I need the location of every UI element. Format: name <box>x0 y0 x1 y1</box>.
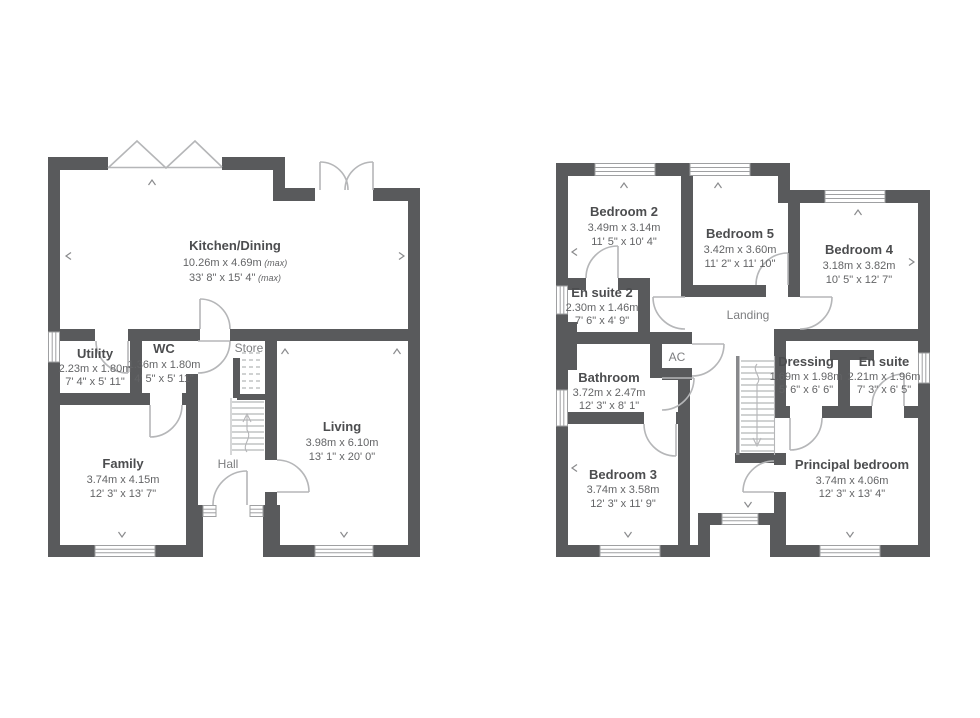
family-window <box>95 546 155 557</box>
svg-text:Principal bedroom: Principal bedroom <box>795 457 909 472</box>
svg-text:En suite: En suite <box>859 354 910 369</box>
kitchen-hall-door <box>200 299 230 329</box>
room-labels: Kitchen/Dining 10.26m x 4.69m (max) 33' … <box>59 238 379 500</box>
bedroom-4-door <box>800 297 832 329</box>
front-door <box>213 471 247 505</box>
svg-text:3.74m x 4.15m: 3.74m x 4.15m <box>87 474 160 486</box>
room-label-en-suite: En suite 2.21m x 1.96m 7' 3" x 6' 5" <box>848 354 921 396</box>
store-dashed-treads <box>242 353 263 388</box>
room-label-landing: Landing <box>727 308 770 322</box>
living-door <box>277 460 309 492</box>
floorplan-page: Kitchen/Dining 10.26m x 4.69m (max) 33' … <box>0 0 980 713</box>
bedroom-2-window <box>595 164 655 176</box>
first-floor-plan: Bedroom 2 3.49m x 3.14m 11' 5" x 10' 4" … <box>556 163 930 557</box>
room-label-store: Store <box>235 341 264 355</box>
svg-text:Family: Family <box>102 456 144 471</box>
svg-text:5' 6" x 6' 6": 5' 6" x 6' 6" <box>779 384 833 396</box>
svg-text:Living: Living <box>323 419 361 434</box>
bedroom-3-door <box>644 424 676 456</box>
stair-direction-arrow <box>753 364 761 446</box>
bedroom-3-window <box>600 546 660 557</box>
dressing-opening <box>790 418 822 450</box>
utility-window <box>49 332 60 362</box>
svg-text:7' 4" x 5' 11": 7' 4" x 5' 11" <box>65 376 125 388</box>
bathroom-window <box>557 390 568 426</box>
svg-text:Dressing: Dressing <box>778 354 834 369</box>
front-door-sidelight-left <box>203 506 216 517</box>
room-labels: Bedroom 2 3.49m x 3.14m 11' 5" x 10' 4" … <box>566 204 921 510</box>
svg-text:11' 5" x 10' 4": 11' 5" x 10' 4" <box>591 236 657 248</box>
svg-text:3.74m x 3.58m: 3.74m x 3.58m <box>587 484 660 496</box>
svg-text:Bedroom 3: Bedroom 3 <box>589 467 657 482</box>
svg-text:12' 3" x 8' 1": 12' 3" x 8' 1" <box>579 400 639 412</box>
svg-text:Bedroom 5: Bedroom 5 <box>706 226 774 241</box>
room-label-kitchen-dining: Kitchen/Dining 10.26m x 4.69m (max) 33' … <box>183 238 287 284</box>
room-label-utility: Utility 2.23m x 1.80m 7' 4" x 5' 11" <box>59 346 132 388</box>
family-door <box>150 405 182 437</box>
svg-text:3.98m x 6.10m: 3.98m x 6.10m <box>306 437 379 449</box>
room-label-bathroom: Bathroom 3.72m x 2.47m 12' 3" x 8' 1" <box>573 370 646 412</box>
svg-text:12' 3" x 11' 9": 12' 3" x 11' 9" <box>590 498 656 510</box>
svg-text:11' 2" x 11' 10": 11' 2" x 11' 10" <box>705 258 776 270</box>
svg-text:Utility: Utility <box>77 346 114 361</box>
stair-direction-arrow <box>243 414 251 452</box>
principal-bedroom-window <box>820 546 880 557</box>
en-suite-2-door <box>586 246 618 278</box>
room-label-living: Living 3.98m x 6.10m 13' 1" x 20' 0" <box>306 419 379 463</box>
svg-text:2.23m x 1.80m: 2.23m x 1.80m <box>59 363 132 375</box>
svg-text:7' 3" x 6' 5": 7' 3" x 6' 5" <box>857 384 911 396</box>
ground-floor-plan: Kitchen/Dining 10.26m x 4.69m (max) 33' … <box>48 141 420 557</box>
svg-text:2.30m x 1.46m: 2.30m x 1.46m <box>566 302 639 314</box>
wc-door <box>198 341 230 373</box>
room-label-ac: AC <box>669 350 686 364</box>
bedroom-2-door <box>653 297 685 329</box>
svg-text:7' 6" x 4' 9": 7' 6" x 4' 9" <box>575 315 629 327</box>
svg-text:2.21m x 1.96m: 2.21m x 1.96m <box>848 371 921 383</box>
floorplan-canvas: Kitchen/Dining 10.26m x 4.69m (max) 33' … <box>0 0 980 713</box>
landing-window <box>722 514 758 525</box>
bedroom-5-window <box>690 164 750 176</box>
room-name: Kitchen/Dining <box>189 238 281 253</box>
living-window <box>315 546 373 557</box>
room-label-family: Family 3.74m x 4.15m 12' 3" x 13' 7" <box>87 456 160 500</box>
svg-text:3.74m x 4.06m: 3.74m x 4.06m <box>816 475 889 487</box>
svg-text:4' 5" x 5' 11": 4' 5" x 5' 11" <box>134 373 194 385</box>
french-doors <box>320 162 373 190</box>
svg-text:3.49m x 3.14m: 3.49m x 3.14m <box>588 222 661 234</box>
front-door-sidelight-right <box>250 506 263 517</box>
bifold-doors <box>108 141 222 168</box>
room-label-bedroom-2: Bedroom 2 3.49m x 3.14m 11' 5" x 10' 4" <box>588 204 661 248</box>
ac-door <box>692 344 724 376</box>
svg-text:12' 3" x 13' 7": 12' 3" x 13' 7" <box>90 488 157 500</box>
svg-text:12' 3" x 13' 4": 12' 3" x 13' 4" <box>819 488 886 500</box>
room-label-principal-bedroom: Principal bedroom 3.74m x 4.06m 12' 3" x… <box>795 457 909 500</box>
svg-text:1.36m x 1.80m: 1.36m x 1.80m <box>128 359 201 371</box>
svg-text:Bathroom: Bathroom <box>578 370 639 385</box>
svg-text:10' 5" x 12' 7": 10' 5" x 12' 7" <box>826 274 893 286</box>
room-dim-imperial: 33' 8" x 15' 4" (max) <box>189 272 281 284</box>
svg-text:Bedroom 4: Bedroom 4 <box>825 242 894 257</box>
room-label-bedroom-5: Bedroom 5 3.42m x 3.60m 11' 2" x 11' 10" <box>704 226 777 270</box>
svg-text:3.72m x 2.47m: 3.72m x 2.47m <box>573 387 646 399</box>
svg-text:3.42m x 3.60m: 3.42m x 3.60m <box>704 244 777 256</box>
stair-treads <box>232 402 264 450</box>
svg-text:Bedroom 2: Bedroom 2 <box>590 204 658 219</box>
svg-text:3.18m x 3.82m: 3.18m x 3.82m <box>823 260 896 272</box>
principal-bedroom-door <box>743 461 774 492</box>
room-label-bedroom-3: Bedroom 3 3.74m x 3.58m 12' 3" x 11' 9" <box>587 467 660 510</box>
room-label-dressing: Dressing 1.69m x 1.98m 5' 6" x 6' 6" <box>770 354 843 396</box>
svg-text:En suite 2: En suite 2 <box>571 285 632 300</box>
room-label-en-suite-2: En suite 2 2.30m x 1.46m 7' 6" x 4' 9" <box>566 285 639 327</box>
svg-text:WC: WC <box>153 341 175 356</box>
svg-text:13' 1" x 20' 0": 13' 1" x 20' 0" <box>309 451 376 463</box>
room-label-bedroom-4: Bedroom 4 3.18m x 3.82m 10' 5" x 12' 7" <box>823 242 896 286</box>
room-label-hall: Hall <box>218 457 239 471</box>
bedroom-4-window <box>825 191 885 203</box>
svg-text:1.69m x 1.98m: 1.69m x 1.98m <box>770 371 843 383</box>
room-dim-metric: 10.26m x 4.69m (max) <box>183 257 287 269</box>
